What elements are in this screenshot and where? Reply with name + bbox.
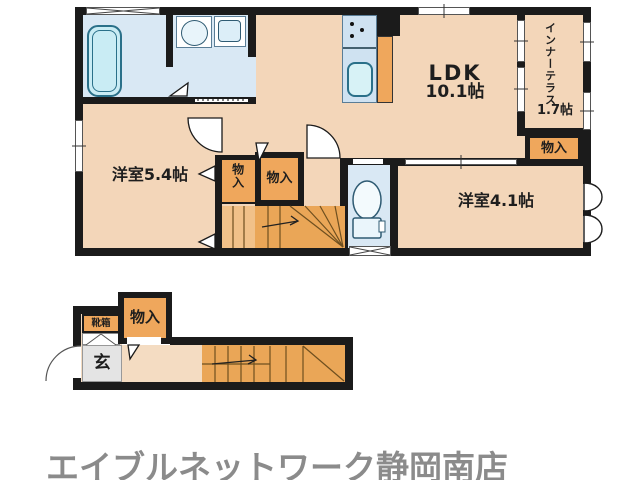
- store-name: エイブルネットワーク静岡南店: [46, 441, 538, 480]
- ldk-label: LDK 10.1帖: [403, 62, 507, 102]
- closet-label: 物入: [130, 310, 160, 326]
- wall: [390, 158, 398, 248]
- wall: [170, 337, 353, 345]
- toilet-room-floor: [348, 165, 390, 248]
- window: [583, 92, 591, 130]
- closet-opening: [127, 337, 161, 345]
- washer-pan: [214, 16, 246, 47]
- washing-machine-icon: [218, 20, 241, 42]
- wall: [83, 97, 195, 104]
- stove-burner-icon: [350, 34, 354, 38]
- window: [405, 159, 517, 165]
- vanity-counter: [176, 16, 212, 48]
- bathtub-inner: [92, 30, 117, 92]
- shoe-box: 靴箱: [82, 314, 120, 333]
- western-room-5-4-label: 洋室5.4帖: [98, 167, 202, 184]
- closet-label: 物入: [541, 142, 567, 156]
- terrace-size: 1.7帖: [530, 104, 580, 118]
- kitchen-side-counter: [377, 36, 393, 103]
- window-opening: [583, 216, 591, 242]
- kitchen-counter: [342, 15, 377, 103]
- entrance-label: 玄: [94, 355, 111, 373]
- stove-burner-icon: [360, 28, 364, 32]
- wall: [377, 15, 400, 36]
- louver-window: [86, 7, 160, 15]
- floor-plan-image: 物入 物入 物入 LDK 10.1帖 インナーテラス 1.7帖 洋室5.4帖 洋…: [0, 0, 640, 480]
- western-room-4-1-label: 洋室4.1帖: [440, 193, 552, 210]
- stove-burner-icon: [350, 22, 354, 26]
- ldk-size: 10.1帖: [403, 84, 507, 102]
- window: [583, 22, 591, 62]
- staircase-1f: [202, 345, 345, 382]
- shoe-box-label: 靴箱: [91, 319, 110, 329]
- staircase-2f: [255, 206, 345, 248]
- wall: [248, 15, 256, 57]
- wall: [215, 155, 222, 248]
- entrance-floor: 玄: [82, 345, 122, 382]
- kitchen-sink-icon: [347, 62, 373, 97]
- terrace-sliding-window: [517, 67, 525, 112]
- counter-divider: [343, 47, 376, 49]
- window: [418, 7, 470, 15]
- wall: [73, 382, 353, 390]
- louver-window: [349, 246, 391, 256]
- vanity-sink-icon: [181, 20, 208, 46]
- closet-right: 物入: [525, 133, 583, 164]
- under-stair-strip: [222, 206, 255, 248]
- window-opening: [583, 184, 591, 210]
- hallway-1f: [122, 345, 202, 382]
- entrance-door-opening: [73, 346, 81, 378]
- window: [75, 120, 83, 172]
- wall: [166, 15, 173, 67]
- sliding-door: [195, 97, 248, 104]
- closet-label: 物入: [266, 172, 292, 186]
- wall: [248, 97, 256, 104]
- closet-small-left: 物入: [222, 160, 255, 204]
- bathtub-icon: [87, 25, 122, 97]
- terrace-name: インナーテラス: [544, 20, 556, 108]
- closet-label: 物入: [231, 163, 244, 189]
- closet-center: 物入: [255, 152, 304, 206]
- shoe-counter: [82, 333, 120, 345]
- wall: [75, 248, 591, 256]
- toilet-door-opening: [353, 159, 383, 164]
- ldk-name: LDK: [403, 62, 507, 84]
- terrace-sliding-window: [517, 20, 525, 62]
